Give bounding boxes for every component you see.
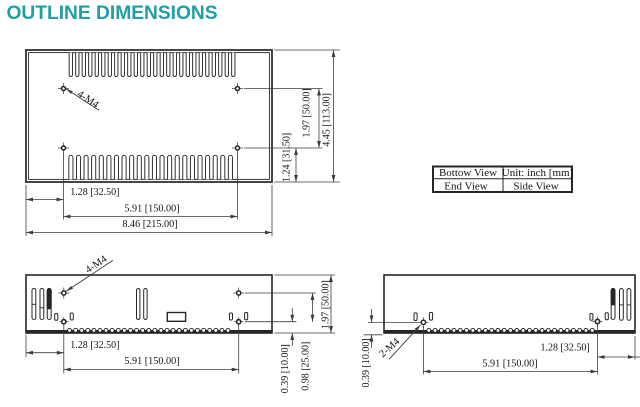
svg-text:4.45 [113.00]: 4.45 [113.00] [321,93,332,147]
svg-text:5.91 [150.00]: 5.91 [150.00] [482,358,537,369]
svg-text:5.91 [150.00]: 5.91 [150.00] [124,203,179,214]
svg-text:0.39 [10.00]: 0.39 [10.00] [280,344,291,393]
svg-text:Side View: Side View [513,180,558,192]
svg-text:0.98 [25.00]: 0.98 [25.00] [300,342,311,391]
svg-text:5.91 [150.00]: 5.91 [150.00] [124,356,179,367]
svg-text:1.28 [32.50]: 1.28 [32.50] [70,340,119,351]
svg-text:1.97 [50.00]: 1.97 [50.00] [301,88,312,137]
svg-text:1.28 [32.50]: 1.28 [32.50] [70,187,119,198]
svg-text:8.46 [215.00]: 8.46 [215.00] [122,219,177,230]
svg-text:OUTLINE DIMENSIONS: OUTLINE DIMENSIONS [7,3,218,24]
svg-text:Bottow View: Bottow View [439,167,497,179]
svg-text:End View: End View [444,180,487,192]
svg-text:1.97 [50.00]: 1.97 [50.00] [321,280,332,329]
svg-text:1.24 [31.50]: 1.24 [31.50] [281,133,292,182]
svg-text:0.39 [10.00]: 0.39 [10.00] [361,338,372,387]
svg-text:1.28 [32.50]: 1.28 [32.50] [541,343,590,354]
svg-text:Unit: inch [mm]: Unit: inch [mm] [502,167,574,179]
